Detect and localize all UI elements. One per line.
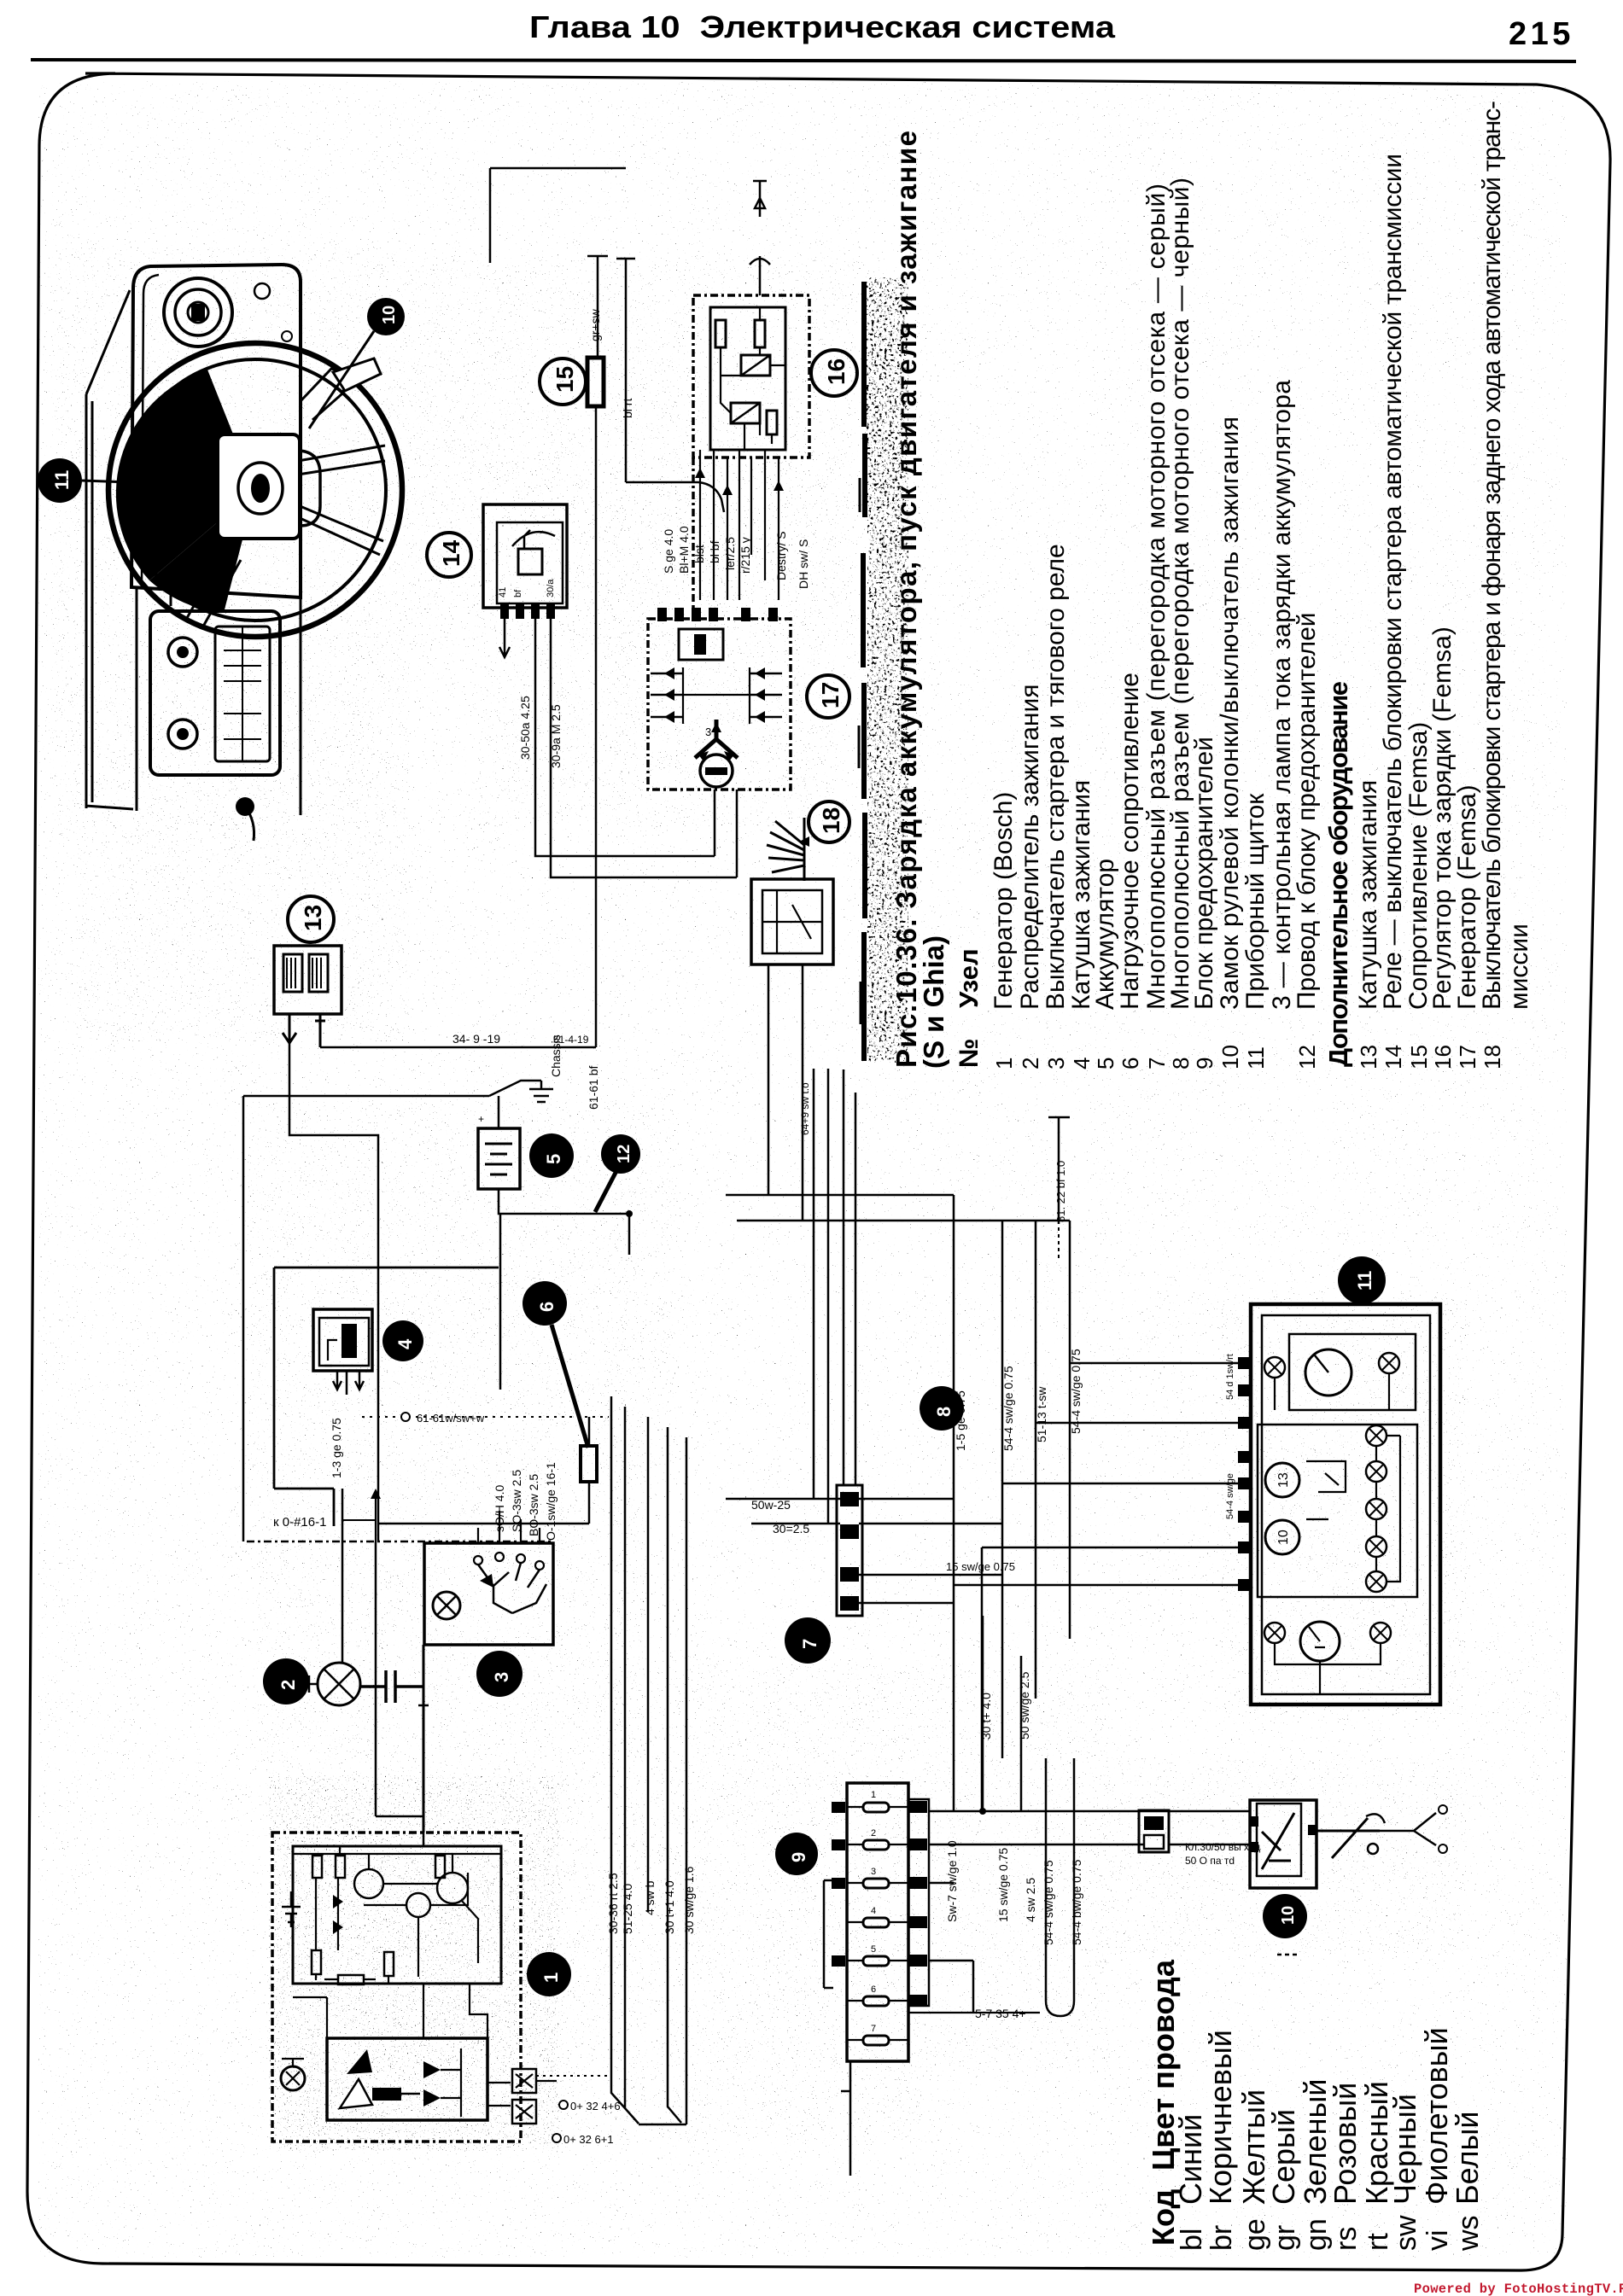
- svg-text:8: 8: [933, 1407, 955, 1417]
- svg-text:11: 11: [1354, 1271, 1375, 1291]
- svg-text:2: 2: [1018, 1058, 1043, 1069]
- svg-text:Дополнительное оборудование: Дополнительное оборудование: [1323, 681, 1353, 1067]
- svg-text:vi: vi: [1422, 2229, 1454, 2251]
- svg-text:13: 13: [1276, 1472, 1291, 1488]
- svg-text:13: 13: [1356, 1045, 1381, 1069]
- svg-text:81. 22 bf 1.0: 81. 22 bf 1.0: [1054, 1161, 1067, 1222]
- svg-text:9: 9: [1192, 1058, 1217, 1069]
- svg-text:1-3 ge 0.75: 1-3 ge 0.75: [330, 1418, 343, 1478]
- svg-text:15: 15: [1406, 1045, 1432, 1069]
- svg-text:gr+sw: gr+sw: [588, 308, 602, 341]
- svg-text:S ge 4.0: S ge 4.0: [662, 529, 675, 574]
- svg-text:34- 9 -19: 34- 9 -19: [452, 1032, 500, 1046]
- svg-text:Глава 10 Электрическая систем: Глава 10 Электрическая система: [529, 9, 1116, 44]
- svg-text:54-4 sw/ge 0.75: 54-4 sw/ge 0.75: [1001, 1366, 1015, 1451]
- svg-text:16: 16: [1430, 1045, 1456, 1069]
- svg-text:ler/2.5: ler/2.5: [723, 537, 737, 570]
- svg-text:(S и Ghia): (S и Ghia): [918, 935, 949, 1069]
- svg-text:30-9а М 2.5: 30-9а М 2.5: [549, 704, 563, 768]
- svg-text:Bl+M 4.0: Bl+M 4.0: [677, 526, 691, 574]
- svg-text:Розовый: Розовый: [1328, 2083, 1363, 2205]
- svg-text:SO-3sw 2.5: SO-3sw 2.5: [510, 1470, 523, 1532]
- svg-text:O-1sw/ge 16-1: O-1sw/ge 16-1: [544, 1462, 558, 1541]
- svg-text:54-4 bw/ge 0.75: 54-4 bw/ge 0.75: [1070, 1859, 1083, 1945]
- svg-text:9: 9: [788, 1852, 809, 1862]
- svg-text:br: br: [1206, 2225, 1238, 2251]
- svg-text:Выключатель блокировки стартер: Выключатель блокировки стартера и фонаря…: [1478, 101, 1506, 1010]
- svg-text:миссии: миссии: [1505, 924, 1533, 1010]
- svg-text:15 sw/ge 0.75: 15 sw/ge 0.75: [946, 1560, 1015, 1573]
- svg-text:0+ 32 4+6: 0+ 32 4+6: [570, 2100, 621, 2112]
- svg-text:Приборный щиток: Приборный щиток: [1241, 793, 1270, 1010]
- svg-text:51-13 t-sw: 51-13 t-sw: [1035, 1386, 1048, 1442]
- svg-text:50w-25: 50w-25: [751, 1498, 791, 1512]
- svg-text:+: +: [478, 1113, 484, 1125]
- svg-text:4: 4: [871, 1906, 876, 1916]
- svg-text:54-4 sw/ge 0.75: 54-4 sw/ge 0.75: [1042, 1860, 1055, 1945]
- svg-text:1: 1: [991, 1058, 1017, 1069]
- svg-text:Провод к блоку предохранителей: Провод к блоку предохранителей: [1293, 612, 1321, 1010]
- svg-text:30-50а 4.25: 30-50а 4.25: [518, 696, 532, 760]
- svg-text:BO-3sw 2.5: BO-3sw 2.5: [527, 1474, 540, 1536]
- svg-text:5-7 35 4+: 5-7 35 4+: [975, 2007, 1026, 2020]
- svg-text:4 sw 2.5: 4 sw 2.5: [1024, 1878, 1037, 1922]
- svg-text:bl bf: bl bf: [708, 540, 721, 563]
- svg-text:12: 12: [615, 1145, 633, 1163]
- svg-text:Распределитель зажигания: Распределитель зажигания: [1016, 685, 1044, 1010]
- svg-text:Узел: Узел: [954, 948, 984, 1008]
- svg-text:Выключатель стартера и тяговог: Выключатель стартера и тягового реле: [1042, 544, 1070, 1010]
- svg-text:Powered by FotoHostingTV.RU: Powered by FotoHostingTV.RU: [1414, 2281, 1623, 2296]
- svg-text:6: 6: [536, 1302, 558, 1312]
- svg-text:11: 11: [51, 470, 73, 490]
- svg-text:sO/H 4.0: sO/H 4.0: [493, 1485, 506, 1532]
- svg-text:10: 10: [1279, 1906, 1298, 1925]
- svg-text:1-5 ge 0.75: 1-5 ge 0.75: [954, 1390, 967, 1451]
- svg-text:12: 12: [1294, 1045, 1320, 1069]
- svg-text:7: 7: [1144, 1058, 1170, 1069]
- svg-text:6: 6: [871, 1984, 876, 1995]
- svg-text:16: 16: [823, 358, 849, 385]
- svg-text:8: 8: [1168, 1058, 1194, 1069]
- svg-text:50 sw/ge 2.5: 50 sw/ge 2.5: [1018, 1671, 1031, 1739]
- svg-text:Нагрузочное сопротивление: Нагрузочное сопротивление: [1116, 673, 1144, 1010]
- svg-text:к 0-#16-1: к 0-#16-1: [273, 1515, 326, 1530]
- svg-text:30/a: 30/a: [546, 579, 556, 597]
- svg-text:50 О па тd: 50 О па тd: [1185, 1855, 1235, 1867]
- svg-text:14: 14: [438, 539, 464, 567]
- svg-text:gr: gr: [1269, 2225, 1301, 2251]
- svg-text:sw: sw: [1390, 2215, 1422, 2251]
- svg-text:13: 13: [300, 905, 326, 931]
- svg-text:rs: rs: [1330, 2227, 1363, 2251]
- svg-text:10: 10: [1217, 1045, 1243, 1069]
- svg-text:bl rt: bl rt: [621, 399, 634, 418]
- svg-text:Chassis: Chassis: [549, 1034, 563, 1077]
- svg-text:Замок рулевой колонки/выключат: Замок рулевой колонки/выключатель зажига…: [1216, 417, 1244, 1010]
- svg-text:5: 5: [1093, 1058, 1118, 1069]
- svg-text:30=2.5: 30=2.5: [773, 1522, 809, 1536]
- svg-text:Destry/ S: Destry/ S: [774, 531, 788, 580]
- svg-text:0+ 32 6+1: 0+ 32 6+1: [563, 2133, 614, 2146]
- svg-text:Рис.10.36. Зарядка аккумулятор: Рис.10.36. Зарядка аккумулятора, пуск дв…: [890, 131, 922, 1068]
- svg-text:1: 1: [871, 1790, 876, 1800]
- svg-text:3: 3: [871, 1867, 876, 1877]
- svg-text:6: 6: [1118, 1058, 1143, 1069]
- svg-text:17: 17: [817, 682, 844, 708]
- svg-text:7: 7: [799, 1639, 820, 1649]
- svg-text:gn: gn: [1300, 2218, 1333, 2251]
- svg-text:54 d 1sw/rt: 54 d 1sw/rt: [1225, 1354, 1235, 1400]
- svg-text:Генератор (Bosch): Генератор (Bosch): [990, 792, 1018, 1010]
- svg-text:54-4 sw/ge: 54-4 sw/ge: [1225, 1473, 1235, 1519]
- svg-text:Реле — выключатель блокировки: Реле — выключатель блокировки стартера а…: [1379, 154, 1407, 1010]
- svg-text:18: 18: [818, 807, 844, 834]
- svg-text:Белый: Белый: [1450, 2112, 1485, 2205]
- svg-text:4: 4: [1069, 1058, 1095, 1069]
- svg-text:7: 7: [871, 2024, 876, 2034]
- svg-text:15: 15: [552, 366, 578, 393]
- svg-text:10: 10: [1276, 1530, 1291, 1545]
- svg-text:3: 3: [491, 1672, 512, 1682]
- svg-text:17: 17: [1455, 1045, 1480, 1069]
- svg-text:215: 215: [1509, 16, 1574, 52]
- svg-text:15 sw/ge 0.75: 15 sw/ge 0.75: [996, 1848, 1010, 1922]
- svg-text:30 t+1 4.0: 30 t+1 4.0: [663, 1880, 676, 1934]
- svg-text:51-25 4.0: 51-25 4.0: [621, 1884, 634, 1934]
- svg-text:bl: bl: [1176, 2229, 1208, 2251]
- svg-text:4: 4: [394, 1338, 416, 1349]
- svg-text:14: 14: [1381, 1045, 1406, 1069]
- svg-text:2: 2: [277, 1680, 299, 1690]
- svg-text:3: 3: [1043, 1058, 1069, 1069]
- svg-text:61-61w/sw+w: 61-61w/sw+w: [417, 1412, 485, 1425]
- svg-text:4 sw b: 4 sw b: [643, 1880, 657, 1915]
- svg-text:30-36 rt 2.5: 30-36 rt 2.5: [606, 1873, 620, 1934]
- svg-text:5: 5: [871, 1944, 876, 1955]
- svg-text:5: 5: [543, 1154, 564, 1164]
- svg-text:ge: ge: [1239, 2218, 1271, 2251]
- svg-text:18: 18: [1480, 1045, 1505, 1069]
- svg-text:3: 3: [705, 726, 711, 738]
- svg-text:2: 2: [871, 1828, 876, 1839]
- svg-text:Коричневый: Коричневый: [1203, 2030, 1238, 2205]
- svg-text:Кл.30/50 вы ход: Кл.30/50 вы ход: [1185, 1841, 1260, 1853]
- svg-text:Sw-7 sw/ge 1.0: Sw-7 sw/ge 1.0: [945, 1840, 959, 1922]
- svg-text:r/215 y: r/215 y: [739, 537, 752, 574]
- svg-text:11: 11: [1243, 1046, 1269, 1069]
- svg-text:61-61 bf: 61-61 bf: [587, 1066, 600, 1110]
- svg-text:10: 10: [380, 306, 399, 324]
- svg-text:1: 1: [540, 1973, 562, 1983]
- svg-text:41: 41: [498, 587, 508, 597]
- svg-text:ws: ws: [1452, 2215, 1485, 2252]
- svg-text:54-4 sw/ge 0.75: 54-4 sw/ge 0.75: [1069, 1349, 1083, 1434]
- svg-text:30 sw/ge 1.6: 30 sw/ge 1.6: [682, 1866, 696, 1934]
- svg-text:30 t+ 4.0: 30 t+ 4.0: [979, 1693, 993, 1739]
- svg-text:bf: bf: [513, 589, 523, 597]
- svg-text:Черный: Черный: [1387, 2094, 1422, 2205]
- svg-text:№: №: [954, 1038, 984, 1068]
- svg-text:Фиолетовый: Фиолетовый: [1419, 2027, 1454, 2205]
- svg-text:Серый: Серый: [1266, 2109, 1301, 2205]
- svg-text:DH sw/ S: DH sw/ S: [797, 539, 810, 589]
- svg-text:64+9 sw t.o: 64+9 sw t.o: [799, 1082, 811, 1135]
- svg-text:Блок предохранителей: Блок предохранителей: [1190, 737, 1218, 1010]
